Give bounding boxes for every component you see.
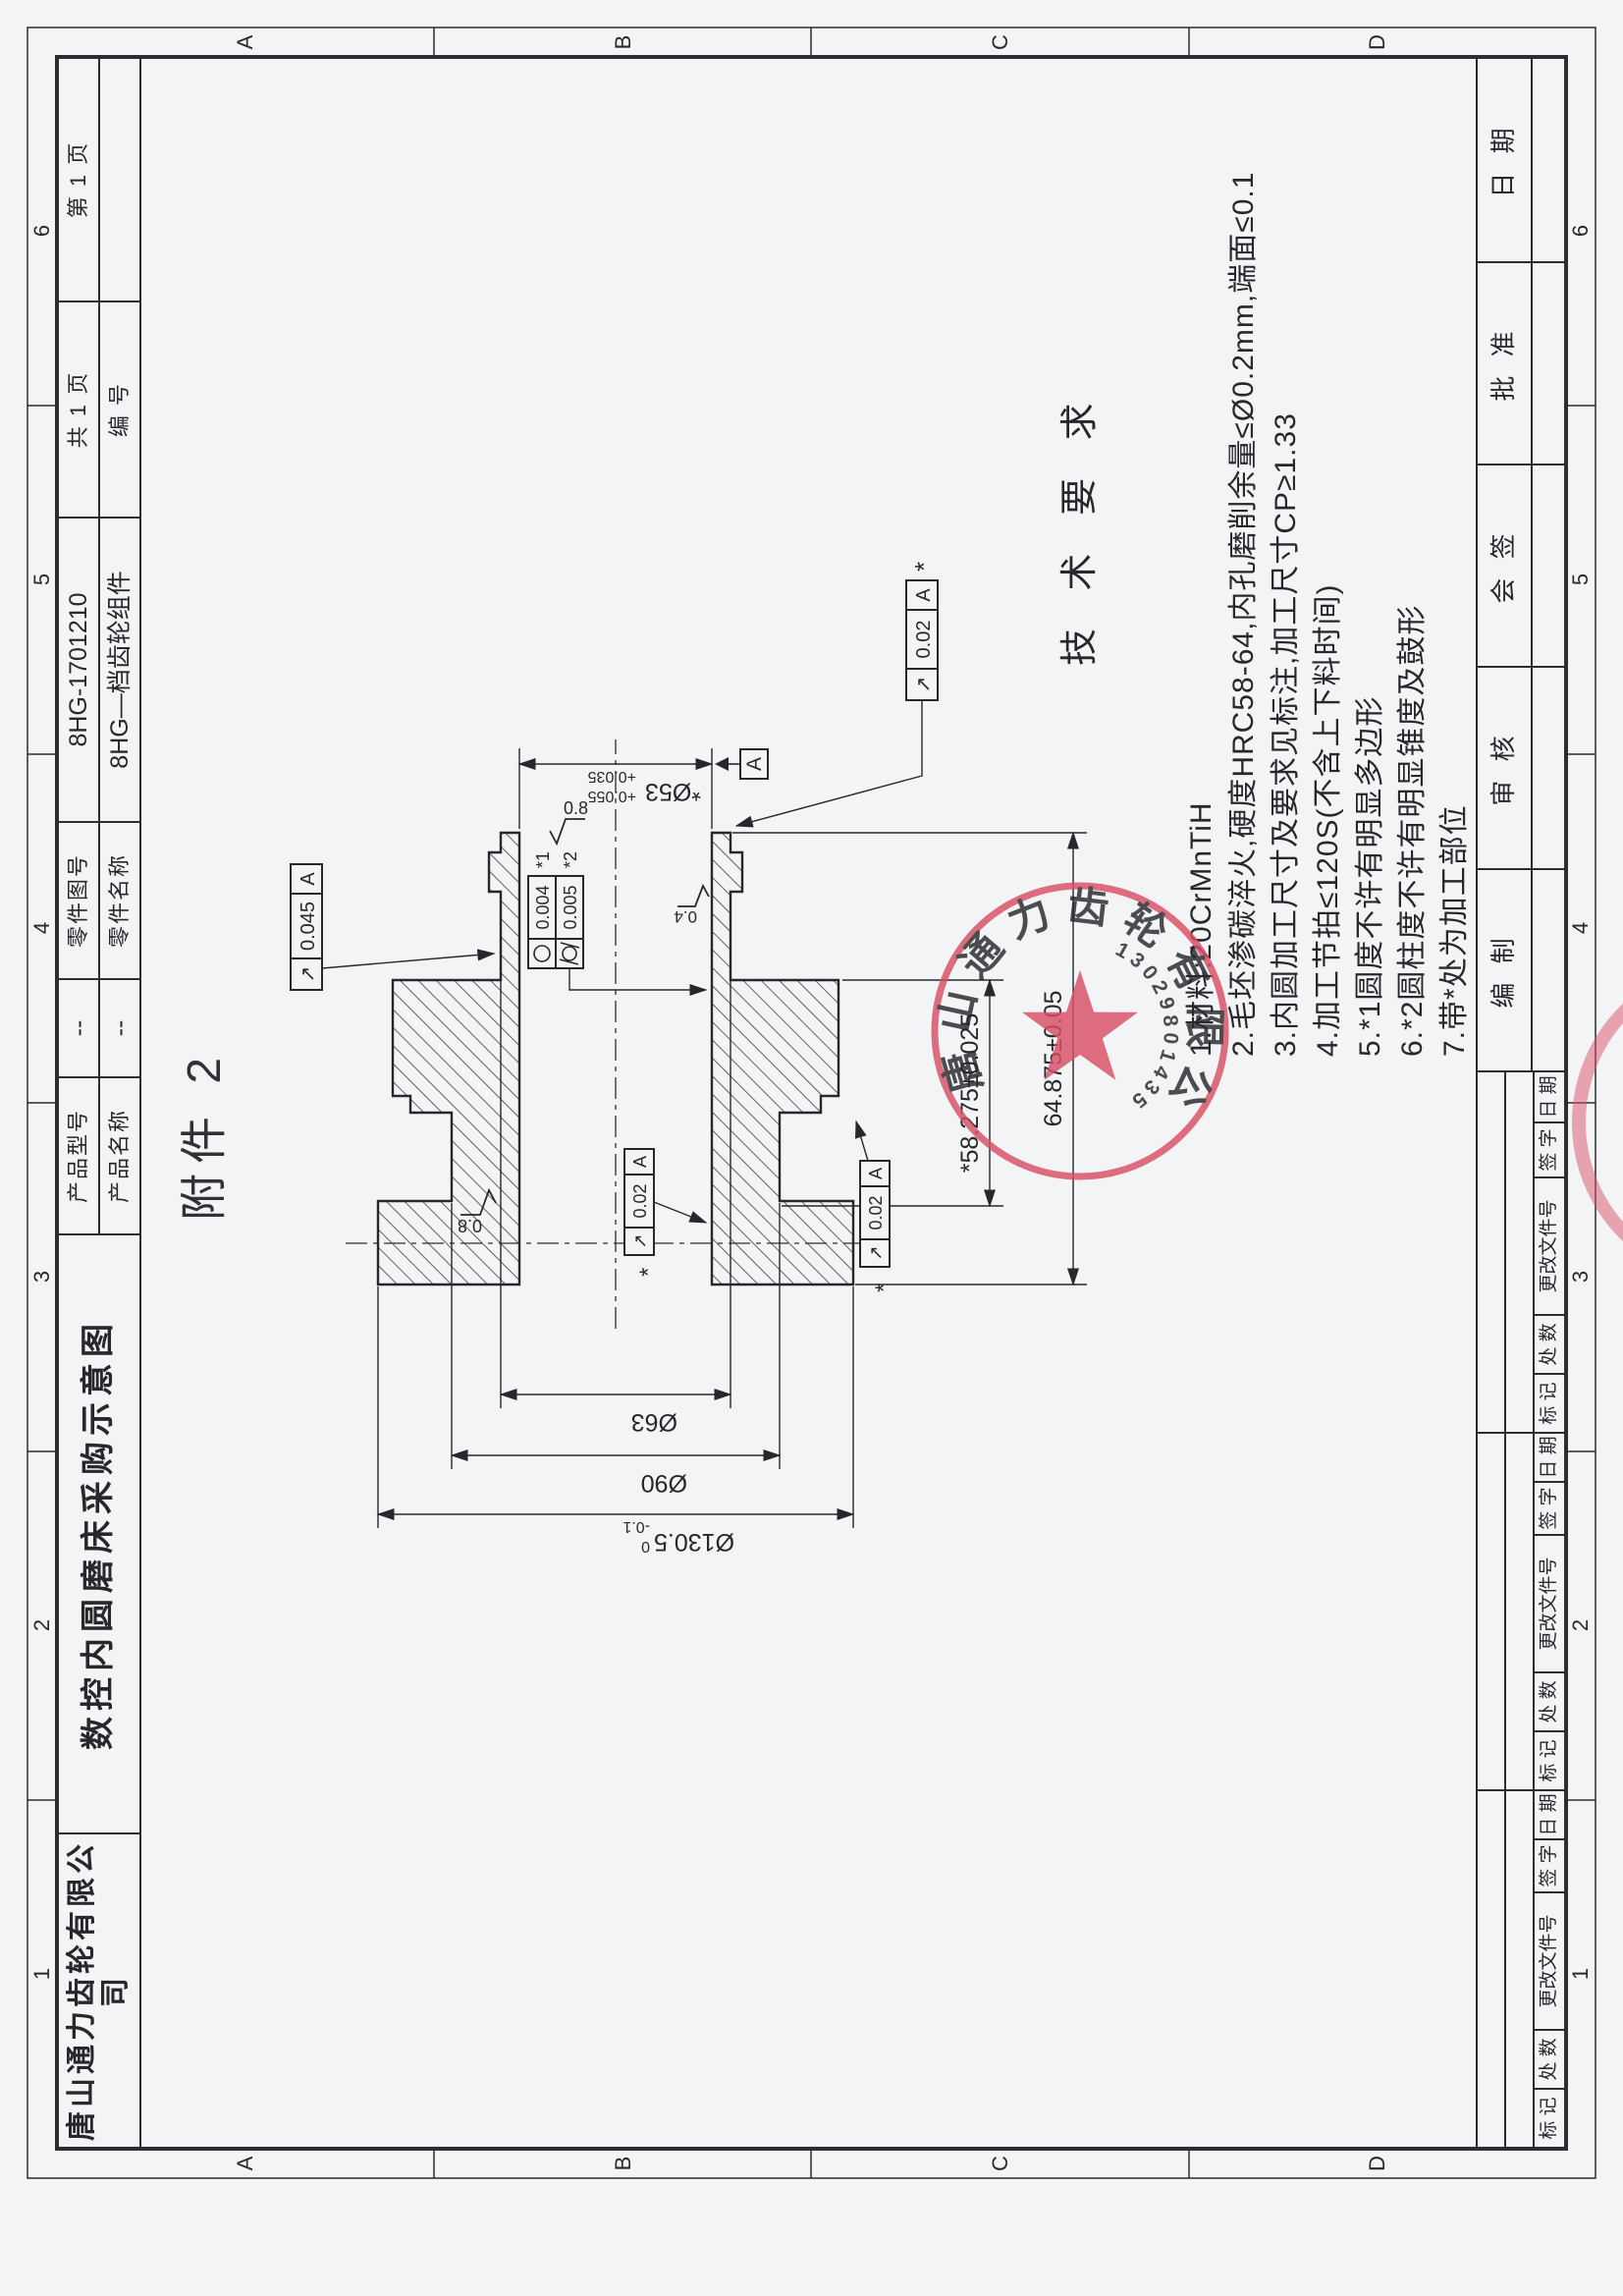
partial-stamp-arc	[1579, 965, 1623, 1280]
gdt-value: 0.02	[866, 1195, 886, 1230]
dim-bore: *Ø53 +0.055 +0.035	[588, 768, 701, 805]
part-upper-half	[378, 833, 519, 1285]
dim-d130-tol-low: -0.1	[622, 1518, 650, 1535]
machined-star: *	[635, 1268, 662, 1277]
dim-d90-value: Ø90	[641, 1469, 687, 1497]
circularity-value: 0.004	[533, 885, 553, 929]
gdt-runout-002-right: ↗ 0.02 A *	[736, 562, 939, 826]
dim-d63: Ø63	[631, 1408, 677, 1436]
roughness-value: 0.4	[674, 907, 697, 926]
datum-a-letter: A	[743, 757, 766, 771]
roughness-value: 0.8	[458, 1216, 482, 1235]
gdt-datum: A	[913, 588, 935, 602]
dim-d130: Ø130.5 0 -0.1	[622, 1518, 734, 1556]
gdt-value: 0.02	[630, 1183, 650, 1218]
gdt-value: 0.02	[913, 621, 935, 659]
dim-d130-value: Ø130.5	[654, 1528, 734, 1556]
cylindricity-value: 0.005	[561, 885, 580, 929]
dim-d90: Ø90	[641, 1469, 687, 1497]
roughness-icon	[550, 819, 585, 844]
company-stamp: 唐山通力齿轮有限公司 13029801435	[931, 882, 1228, 1176]
runout-icon: ↗	[630, 1233, 650, 1248]
roughness-value: 0.8	[564, 798, 588, 818]
dim-bore-tol-up: +0.055	[588, 788, 636, 804]
roughness-right-face: 0.8	[550, 798, 588, 844]
gdt-datum: A	[298, 872, 319, 886]
runout-icon: ↗	[866, 1245, 886, 1260]
runout-icon: ↗	[913, 677, 935, 693]
gdt-datum: A	[866, 1168, 886, 1179]
runout-icon: ↗	[298, 966, 319, 983]
roughness-icon	[677, 886, 709, 906]
gdt-datum: A	[630, 1156, 650, 1168]
gdt-runout-002-flange: * ↗ 0.02 A	[856, 1121, 897, 1292]
dim-d130-tol-up: 0	[641, 1538, 650, 1555]
drawing-canvas: *Ø53 +0.055 +0.035 Ø63 Ø90 Ø130.5 0 -0.1…	[0, 0, 1623, 2296]
machined-star: *	[871, 1284, 897, 1292]
drawing-sheet: 1 2 3 4 5 6 1 2 3 4 5 6 A B C D A B C D …	[0, 0, 1623, 2296]
cylindricity-tag: *2	[561, 851, 580, 868]
part-lower-half	[712, 833, 853, 1285]
roughness-bore: 0.4	[674, 886, 709, 926]
dim-d63-value: Ø63	[631, 1408, 677, 1436]
dim-bore-tol-low: +0.035	[588, 768, 636, 785]
datum-a-flag: A	[715, 749, 768, 779]
dim-bore-value: *Ø53	[645, 778, 701, 805]
scanned-drawing-page: 1 2 3 4 5 6 1 2 3 4 5 6 A B C D A B C D …	[0, 0, 1623, 2296]
circularity-tag: *1	[533, 851, 553, 868]
gdt-runout-0045: ↗ 0.045 A	[291, 864, 494, 990]
machined-star: *	[909, 562, 939, 572]
gdt-runout-002-bore: * ↗ 0.02 A	[624, 1149, 706, 1277]
gdt-value: 0.045	[298, 902, 319, 951]
